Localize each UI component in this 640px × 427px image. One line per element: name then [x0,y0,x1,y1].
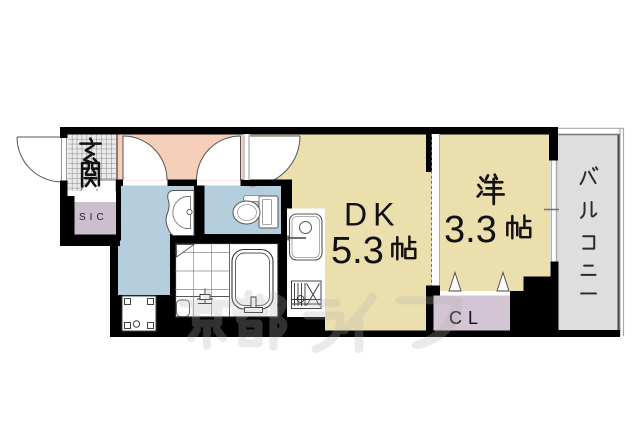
svg-text:5.3: 5.3 [331,230,384,272]
svg-text:DK: DK [344,197,400,233]
svg-text:SIC: SIC [79,212,108,223]
svg-text:3.3: 3.3 [444,209,497,251]
